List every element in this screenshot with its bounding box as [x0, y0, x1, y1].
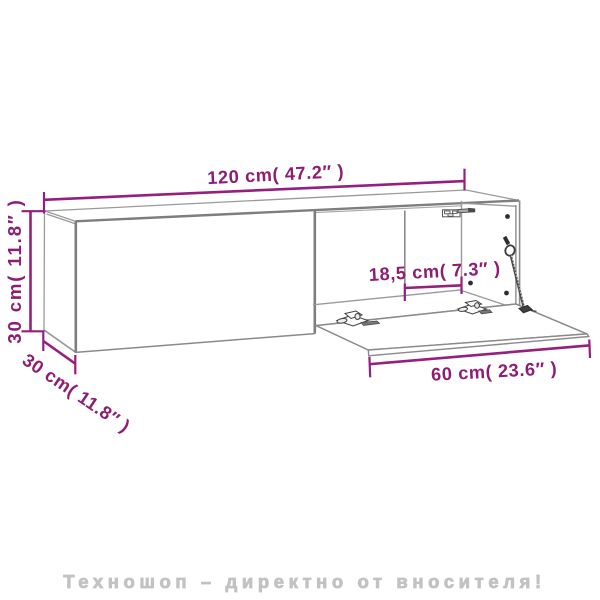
svg-text:Техношоп – директно от вносите: Техношоп – директно от вносителя!: [63, 571, 545, 592]
svg-text:30 cm( 11.8″ ): 30 cm( 11.8″ ): [4, 198, 25, 343]
